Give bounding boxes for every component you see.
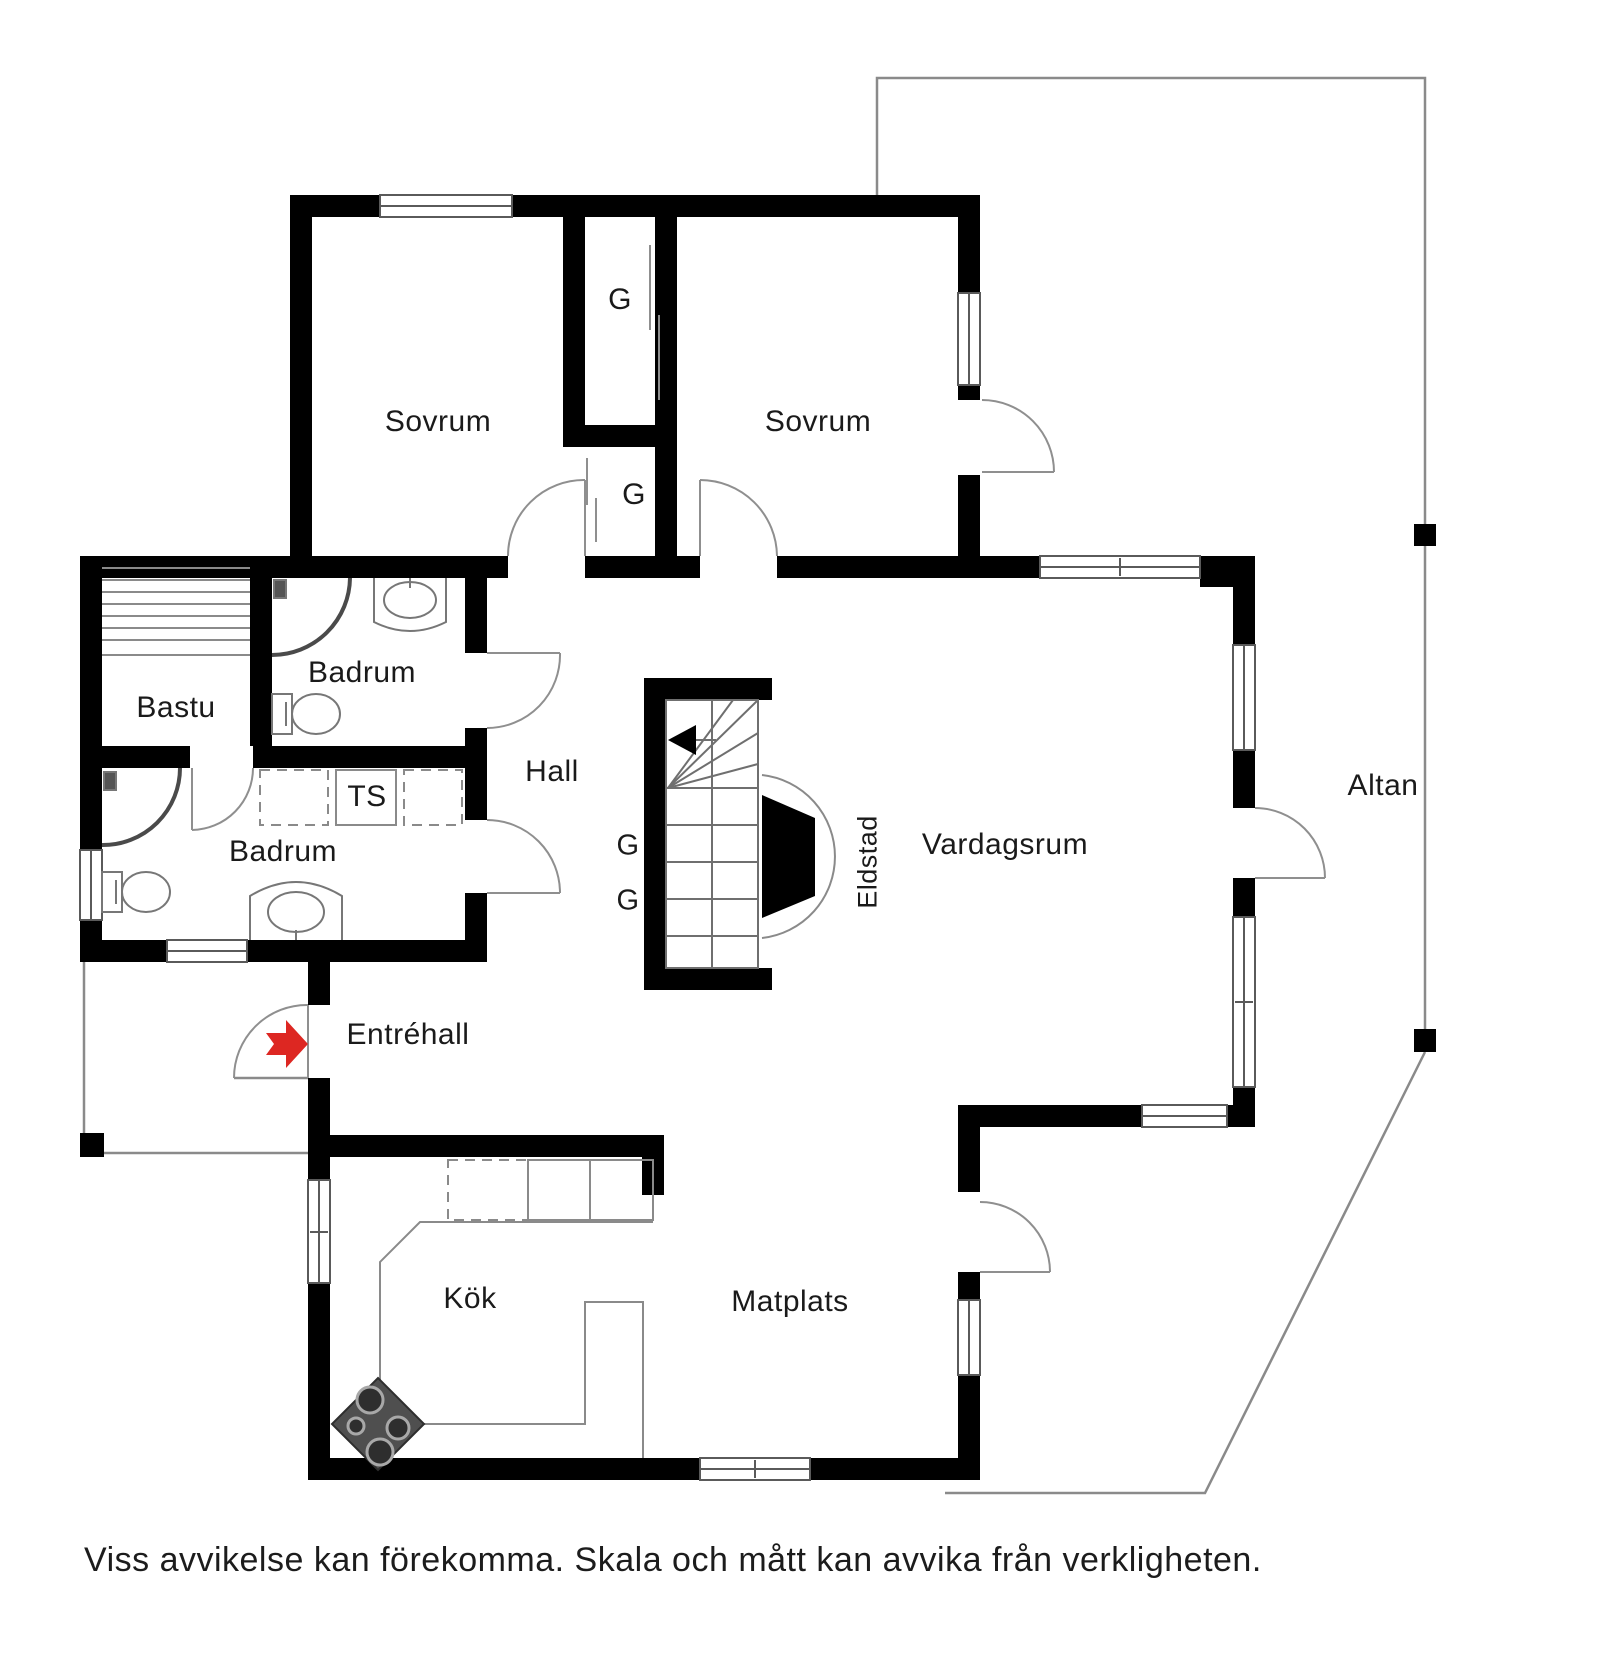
room-label-vardagsrum: Vardagsrum [922, 828, 1088, 862]
room-label-kok: Kök [443, 1282, 496, 1316]
window-kok-left [308, 1180, 330, 1283]
room-label-hall: Hall [525, 755, 579, 789]
room-label-entrehall: Entréhall [347, 1018, 470, 1052]
door-sovrum2-terrace [982, 400, 1054, 472]
room-label-ts: TS [347, 780, 386, 814]
toilet-upper [272, 694, 340, 734]
room-label-bastu: Bastu [136, 691, 215, 725]
window-matplats-bottom [700, 1458, 810, 1480]
sliding-door-closet-mid [587, 458, 596, 542]
window-badrum-porch [167, 940, 247, 962]
window-vardagsrum-top [1040, 556, 1200, 578]
shower-lower [102, 768, 180, 845]
disclaimer-text: Viss avvikelse kan förekomma. Skala och … [84, 1541, 1262, 1580]
door-sovrum2 [700, 480, 777, 556]
window-badrum-left [80, 850, 102, 920]
window-matplats-right [958, 1300, 980, 1375]
window-vardagsrum-right-upper [1233, 645, 1255, 750]
window-vardagsrum-right-lower [1233, 917, 1255, 1087]
sink-upper [374, 578, 446, 631]
room-label-sovrum1: Sovrum [385, 405, 491, 439]
door-bastu [192, 768, 253, 830]
window-vardagsrum-bottom [1142, 1105, 1227, 1127]
stove [332, 1378, 424, 1470]
shower-upper [272, 578, 350, 655]
entry-arrow-icon [266, 1020, 308, 1068]
room-label-badrum-lower: Badrum [229, 835, 337, 869]
entry-porch [84, 962, 308, 1153]
room-label-altan: Altan [1348, 769, 1419, 803]
closet-label-stair2: G [616, 885, 639, 918]
staircase [666, 700, 758, 968]
closet-label-stair1: G [616, 830, 639, 863]
sink-lower [250, 882, 342, 940]
room-label-sovrum2: Sovrum [765, 405, 871, 439]
room-label-badrum-upper: Badrum [308, 656, 416, 690]
window-sovrum1-top [380, 195, 512, 217]
room-label-eldstad: Eldstad [853, 815, 884, 909]
door-sovrum1 [508, 480, 585, 556]
door-badrum-lower [487, 820, 560, 893]
kitchen-counter [380, 1160, 653, 1458]
floorplan-drawing [0, 0, 1600, 1666]
window-sovrum2-right [958, 293, 980, 385]
fireplace [762, 775, 835, 938]
door-vardagsrum-terrace [1255, 808, 1325, 878]
toilet-lower [102, 872, 170, 912]
closet-label-mid: G [622, 478, 646, 512]
sauna-benches [102, 568, 250, 655]
floorplan: Sovrum Sovrum G G Bastu Badrum TS Badrum… [0, 0, 1600, 1666]
door-badrum-upper [487, 653, 560, 728]
porch-post [80, 1133, 104, 1157]
room-label-matplats: Matplats [731, 1285, 848, 1319]
door-matplats-terrace [980, 1202, 1050, 1272]
closet-label-top: G [608, 283, 632, 317]
